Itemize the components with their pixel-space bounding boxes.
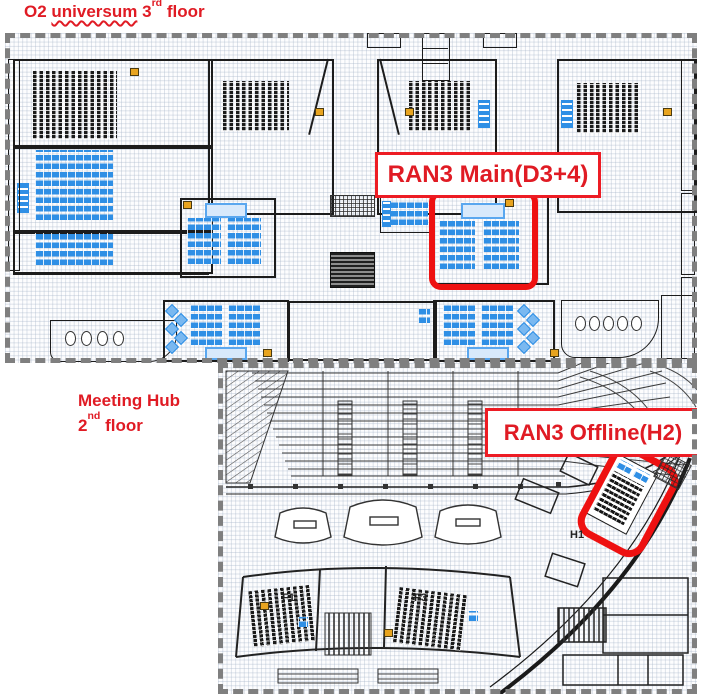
plan1-title-prefix: O2: [24, 2, 51, 21]
ran3-offline-label: RAN3 Offline(H2): [485, 408, 697, 457]
yellow-marker-icon: [315, 108, 324, 116]
edge-rooms-right-2: [681, 193, 695, 275]
seating-block-blue-l2b: [481, 305, 513, 345]
yellow-marker-icon: [550, 349, 559, 357]
toilet-stall-icon: [113, 331, 124, 346]
toilet-stall-icon: [97, 331, 108, 346]
central-shaft: [422, 33, 450, 81]
seating-block-blue-m1a: [187, 218, 221, 264]
yellow-marker-icon: [505, 199, 514, 207]
seating-block-blue-l2a: [443, 305, 475, 345]
plan2-title-ordinal: nd: [87, 410, 100, 422]
ran3-main-label: RAN3 Main(D3+4): [375, 152, 601, 198]
seating-block-blue-mini: [390, 201, 428, 225]
room-label-f3: F3: [414, 592, 427, 604]
stairs-hatch: [330, 195, 375, 217]
ran3-main-highlight: [429, 190, 538, 290]
seating-block-blue-left-lower: [35, 233, 113, 265]
plan1-title-underlined-word: universum: [51, 2, 137, 21]
floor-plan-o2-universum: RAN3 Main(D3+4): [5, 33, 697, 363]
edge-rooms-left: [8, 59, 20, 271]
plan1-title-suffix: floor: [162, 2, 205, 21]
room-label-h1: H1: [570, 529, 584, 541]
table-strip-icon: [382, 201, 391, 227]
yellow-marker-icon: [384, 629, 393, 637]
yellow-marker-icon: [663, 108, 672, 116]
floor-plan-meeting-hub: F1 F3 H1 RAN3 Offline(H2): [218, 363, 697, 694]
toilet-stall-icon: [589, 316, 600, 331]
vestibule-top-2: [483, 33, 517, 48]
venue-floor-maps-page: { "titles": { "plan1": { "prefix": "O2 "…: [0, 0, 701, 697]
plan1-title-ordinal: rd: [152, 0, 163, 9]
plan1-title-number: 3: [137, 2, 151, 21]
seating-block-blue-l1b: [228, 305, 260, 345]
table-strip-icon: [478, 100, 490, 128]
toilet-stall-icon: [603, 316, 614, 331]
yellow-marker-icon: [130, 68, 139, 76]
vestibule-top-1: [367, 33, 401, 48]
yellow-marker-icon: [405, 108, 414, 116]
toilet-stall-icon: [81, 331, 92, 346]
seating-block-black-right: [577, 83, 641, 133]
yellow-marker-icon: [263, 349, 272, 357]
head-table: [205, 347, 247, 360]
toilet-stall-icon: [631, 316, 642, 331]
door-marker-blue: [298, 617, 308, 627]
seating-block-blue-l1a: [190, 305, 222, 345]
plan2-title-suffix: floor: [100, 416, 143, 435]
seating-block-blue-m1b: [227, 218, 261, 264]
toilet-stall-icon: [575, 316, 586, 331]
seating-block-blue-tiny: [418, 309, 430, 323]
head-table: [467, 347, 509, 360]
tier-wedge-hatch: [226, 371, 288, 483]
seating-block-black-left: [33, 71, 117, 139]
corridor-central-lower: [288, 301, 437, 361]
edge-rooms-right-1: [681, 59, 695, 191]
shaft-line: [422, 48, 448, 49]
shaft-line: [422, 63, 448, 64]
seating-block-f3: [393, 587, 467, 651]
toilet-stall-icon: [617, 316, 628, 331]
plan2-title-line2: 2nd floor: [78, 414, 180, 439]
door-marker-blue: [468, 611, 478, 621]
seating-block-blue-left-upper: [35, 150, 113, 220]
yellow-marker-icon: [183, 201, 192, 209]
fan-stages: [275, 500, 501, 545]
seating-block-black-trapL: [223, 81, 289, 131]
yellow-marker-icon: [260, 602, 269, 610]
table-strip-icon: [561, 100, 573, 128]
plan2-title: Meeting Hub 2nd floor: [78, 389, 180, 438]
room-label-f1: F1: [282, 592, 295, 604]
seating-block-black-trapR: [409, 81, 471, 131]
room-small-se: [661, 295, 695, 359]
plan1-title: O2 universum 3rd floor: [24, 0, 205, 25]
toilet-stall-icon: [65, 331, 76, 346]
head-table: [205, 203, 247, 218]
stairs-dark-block: [330, 252, 375, 288]
